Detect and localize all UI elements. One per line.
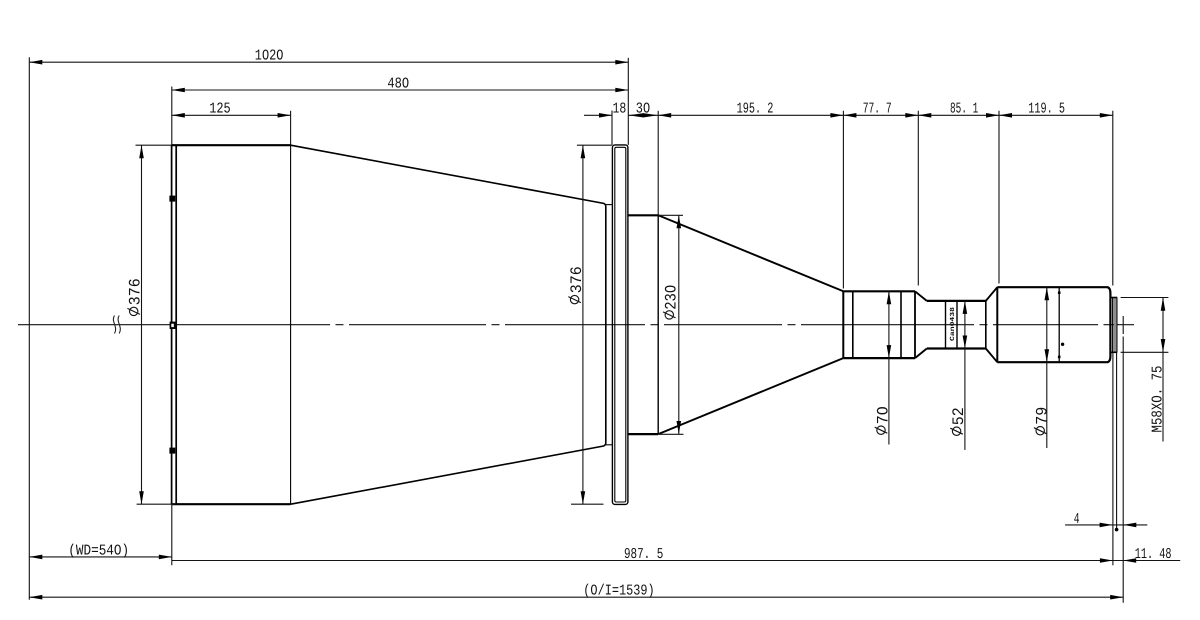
svg-text:11. 48: 11. 48 xyxy=(1135,546,1172,563)
svg-text:376: 376 xyxy=(568,266,586,293)
svg-text:Can0438: Can0438 xyxy=(949,307,956,341)
svg-text:(WD=54O): (WD=54O) xyxy=(68,542,129,559)
svg-text:987. 5: 987. 5 xyxy=(624,546,663,563)
svg-text:77. 7: 77. 7 xyxy=(863,101,892,118)
svg-text:18: 18 xyxy=(613,101,627,118)
svg-text:3O: 3O xyxy=(636,101,650,118)
svg-text:125: 125 xyxy=(209,101,231,118)
svg-text:7O: 7O xyxy=(874,406,892,424)
svg-text:1O2O: 1O2O xyxy=(255,48,284,65)
svg-text:376: 376 xyxy=(127,278,145,305)
svg-text:85. 1: 85. 1 xyxy=(950,101,978,118)
svg-text:119. 5: 119. 5 xyxy=(1028,101,1065,118)
svg-text:4: 4 xyxy=(1074,511,1080,528)
svg-text:48O: 48O xyxy=(387,75,409,92)
svg-text:79: 79 xyxy=(1033,407,1051,425)
svg-text:(O/I=1539): (O/I=1539) xyxy=(583,583,654,600)
svg-text:M58XO. 75: M58XO. 75 xyxy=(1150,366,1167,433)
svg-text:195. 2: 195. 2 xyxy=(737,101,774,118)
svg-text:52: 52 xyxy=(950,407,968,425)
svg-text:23O: 23O xyxy=(662,285,680,310)
